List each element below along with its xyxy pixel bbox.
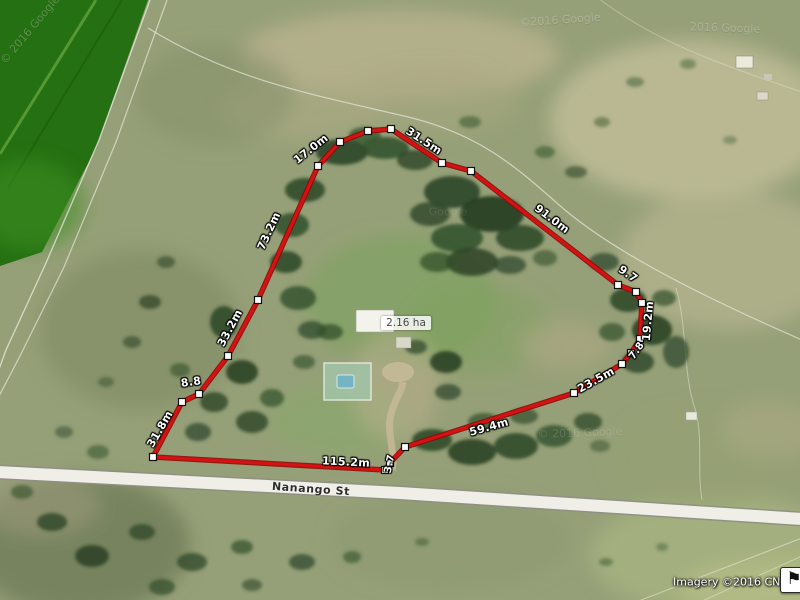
map-canvas bbox=[0, 0, 800, 600]
satellite-map-viewport[interactable]: 17.0m 31.5m 91.0m 9.7 19.2m 7.8 23.5m 59… bbox=[0, 0, 800, 600]
measurement-vertex[interactable] bbox=[388, 126, 395, 133]
measurement-vertex[interactable] bbox=[315, 163, 322, 170]
measurement-vertex[interactable] bbox=[196, 391, 203, 398]
measurement-vertex[interactable] bbox=[365, 128, 372, 135]
outbuilding bbox=[686, 412, 697, 420]
measurement-vertex[interactable] bbox=[255, 297, 262, 304]
neighbour-building bbox=[736, 56, 753, 68]
measurement-vertex[interactable] bbox=[225, 353, 232, 360]
measurement-vertex[interactable] bbox=[402, 444, 409, 451]
measurement-vertex[interactable] bbox=[439, 160, 446, 167]
neighbour-shed bbox=[757, 92, 768, 100]
area-label: 2.16 ha bbox=[381, 316, 431, 330]
measurement-vertex[interactable] bbox=[619, 361, 626, 368]
shed-roof bbox=[396, 337, 411, 348]
neighbour-tank bbox=[764, 74, 772, 80]
measurement-vertex[interactable] bbox=[179, 399, 186, 406]
flag-icon[interactable]: ⚑ bbox=[780, 567, 800, 593]
measurement-vertex[interactable] bbox=[615, 282, 622, 289]
watermark-google: Google bbox=[429, 206, 468, 219]
measure-label-115-2m: 115.2m bbox=[322, 454, 371, 469]
swimming-pool bbox=[337, 375, 354, 388]
measurement-vertex[interactable] bbox=[337, 139, 344, 146]
measurement-vertex[interactable] bbox=[571, 390, 578, 397]
measurement-vertex[interactable] bbox=[633, 289, 640, 296]
watermark-google: 2016 Google bbox=[690, 20, 761, 35]
measurement-vertex[interactable] bbox=[468, 168, 475, 175]
measurement-vertex[interactable] bbox=[150, 454, 157, 461]
